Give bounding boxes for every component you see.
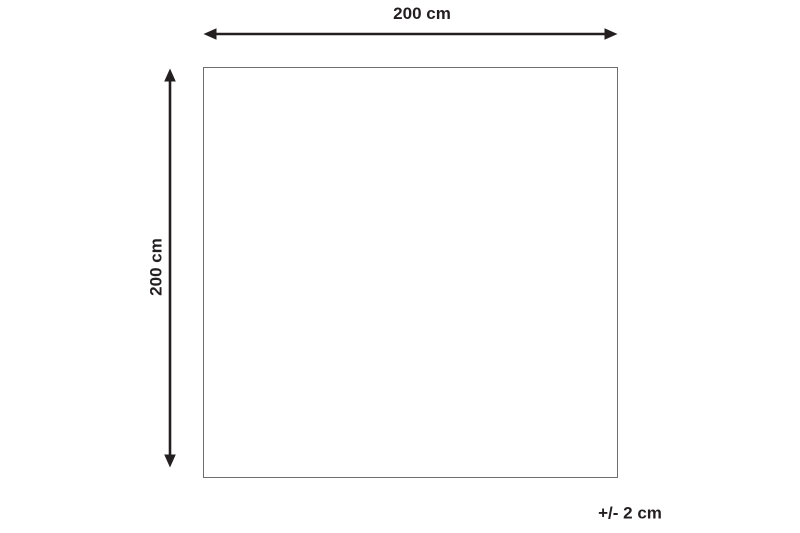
horizontal-dimension-arrow xyxy=(203,24,618,44)
product-outline-square xyxy=(203,67,618,478)
dimension-diagram: 200 cm 200 cm +/- 2 cm xyxy=(0,0,800,533)
width-dimension-label: 200 cm xyxy=(393,5,451,22)
tolerance-label: +/- 2 cm xyxy=(598,505,662,522)
vertical-dimension-arrow xyxy=(160,68,180,468)
